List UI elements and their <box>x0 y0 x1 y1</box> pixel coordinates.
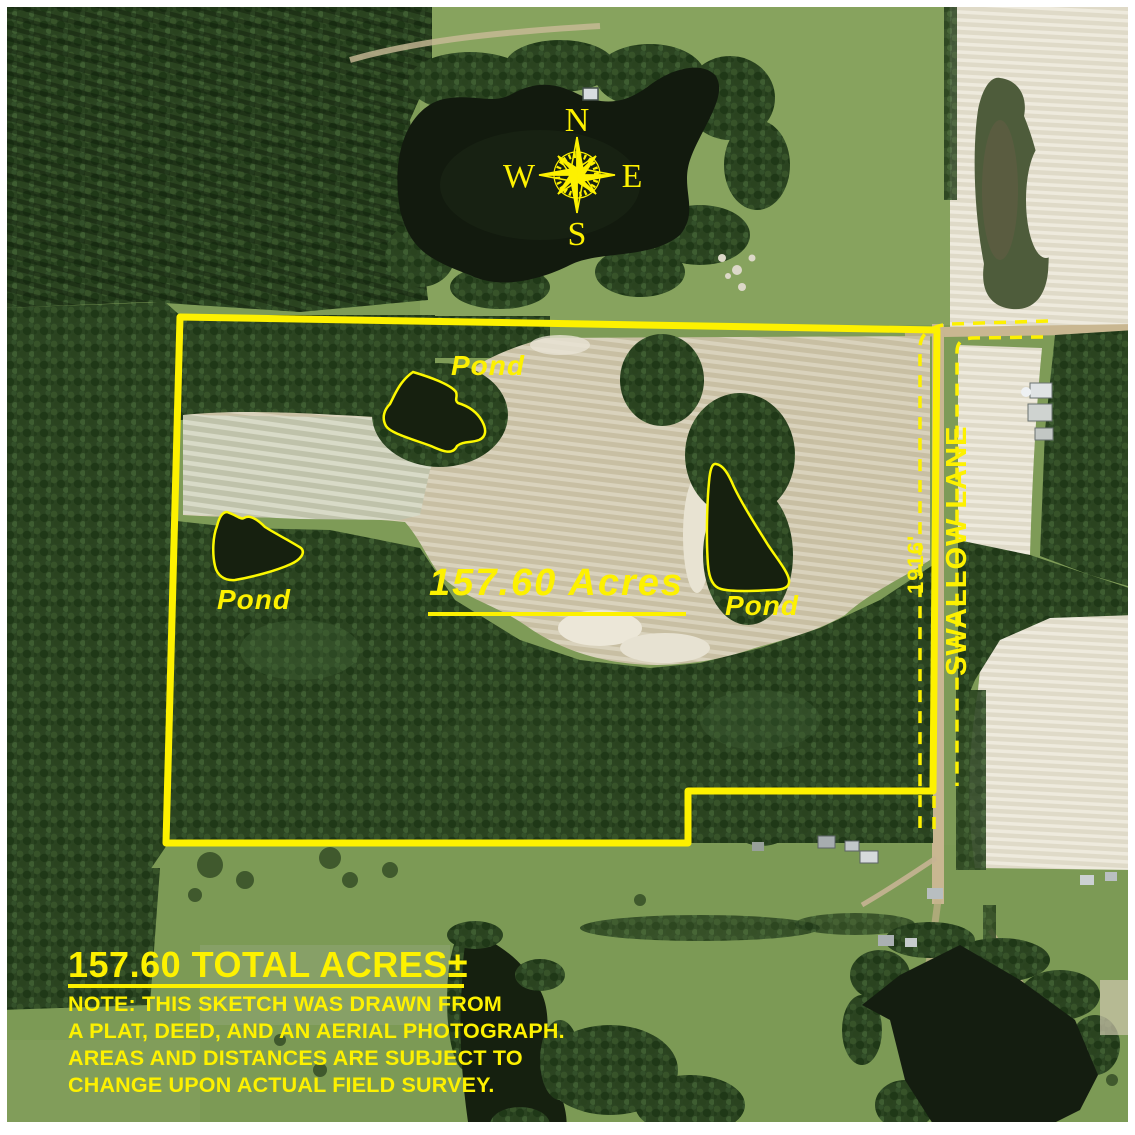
compass-west-label: W <box>503 158 536 195</box>
note-line-2: A PLAT, DEED, AND AN AERIAL PHOTOGRAPH. <box>68 1018 565 1045</box>
note-line-4: CHANGE UPON ACTUAL FIELD SURVEY. <box>68 1072 565 1099</box>
survey-sketch-page: N S W E Pond Pond Pond 157.60 Acres 1916… <box>0 0 1135 1135</box>
acreage-label: 157.60 Acres <box>429 562 684 605</box>
road-name-label: SWALLOW LANE <box>941 426 974 676</box>
acreage-underline <box>428 612 686 616</box>
compass-south-label: S <box>568 216 587 253</box>
pond-label-1: Pond <box>451 350 525 382</box>
pond-label-3: Pond <box>725 590 799 622</box>
total-acres-underline <box>68 984 464 988</box>
note-block: NOTE: THIS SKETCH WAS DRAWN FROM A PLAT,… <box>68 991 565 1099</box>
road-frontage-label: 1916' <box>903 535 929 594</box>
pond-label-2: Pond <box>217 584 291 616</box>
compass-east-label: E <box>622 158 643 195</box>
note-line-1: NOTE: THIS SKETCH WAS DRAWN FROM <box>68 991 565 1018</box>
compass-north-label: N <box>565 102 590 139</box>
note-line-3: AREAS AND DISTANCES ARE SUBJECT TO <box>68 1045 565 1072</box>
total-acres-label: 157.60 TOTAL ACRES± <box>68 944 468 986</box>
